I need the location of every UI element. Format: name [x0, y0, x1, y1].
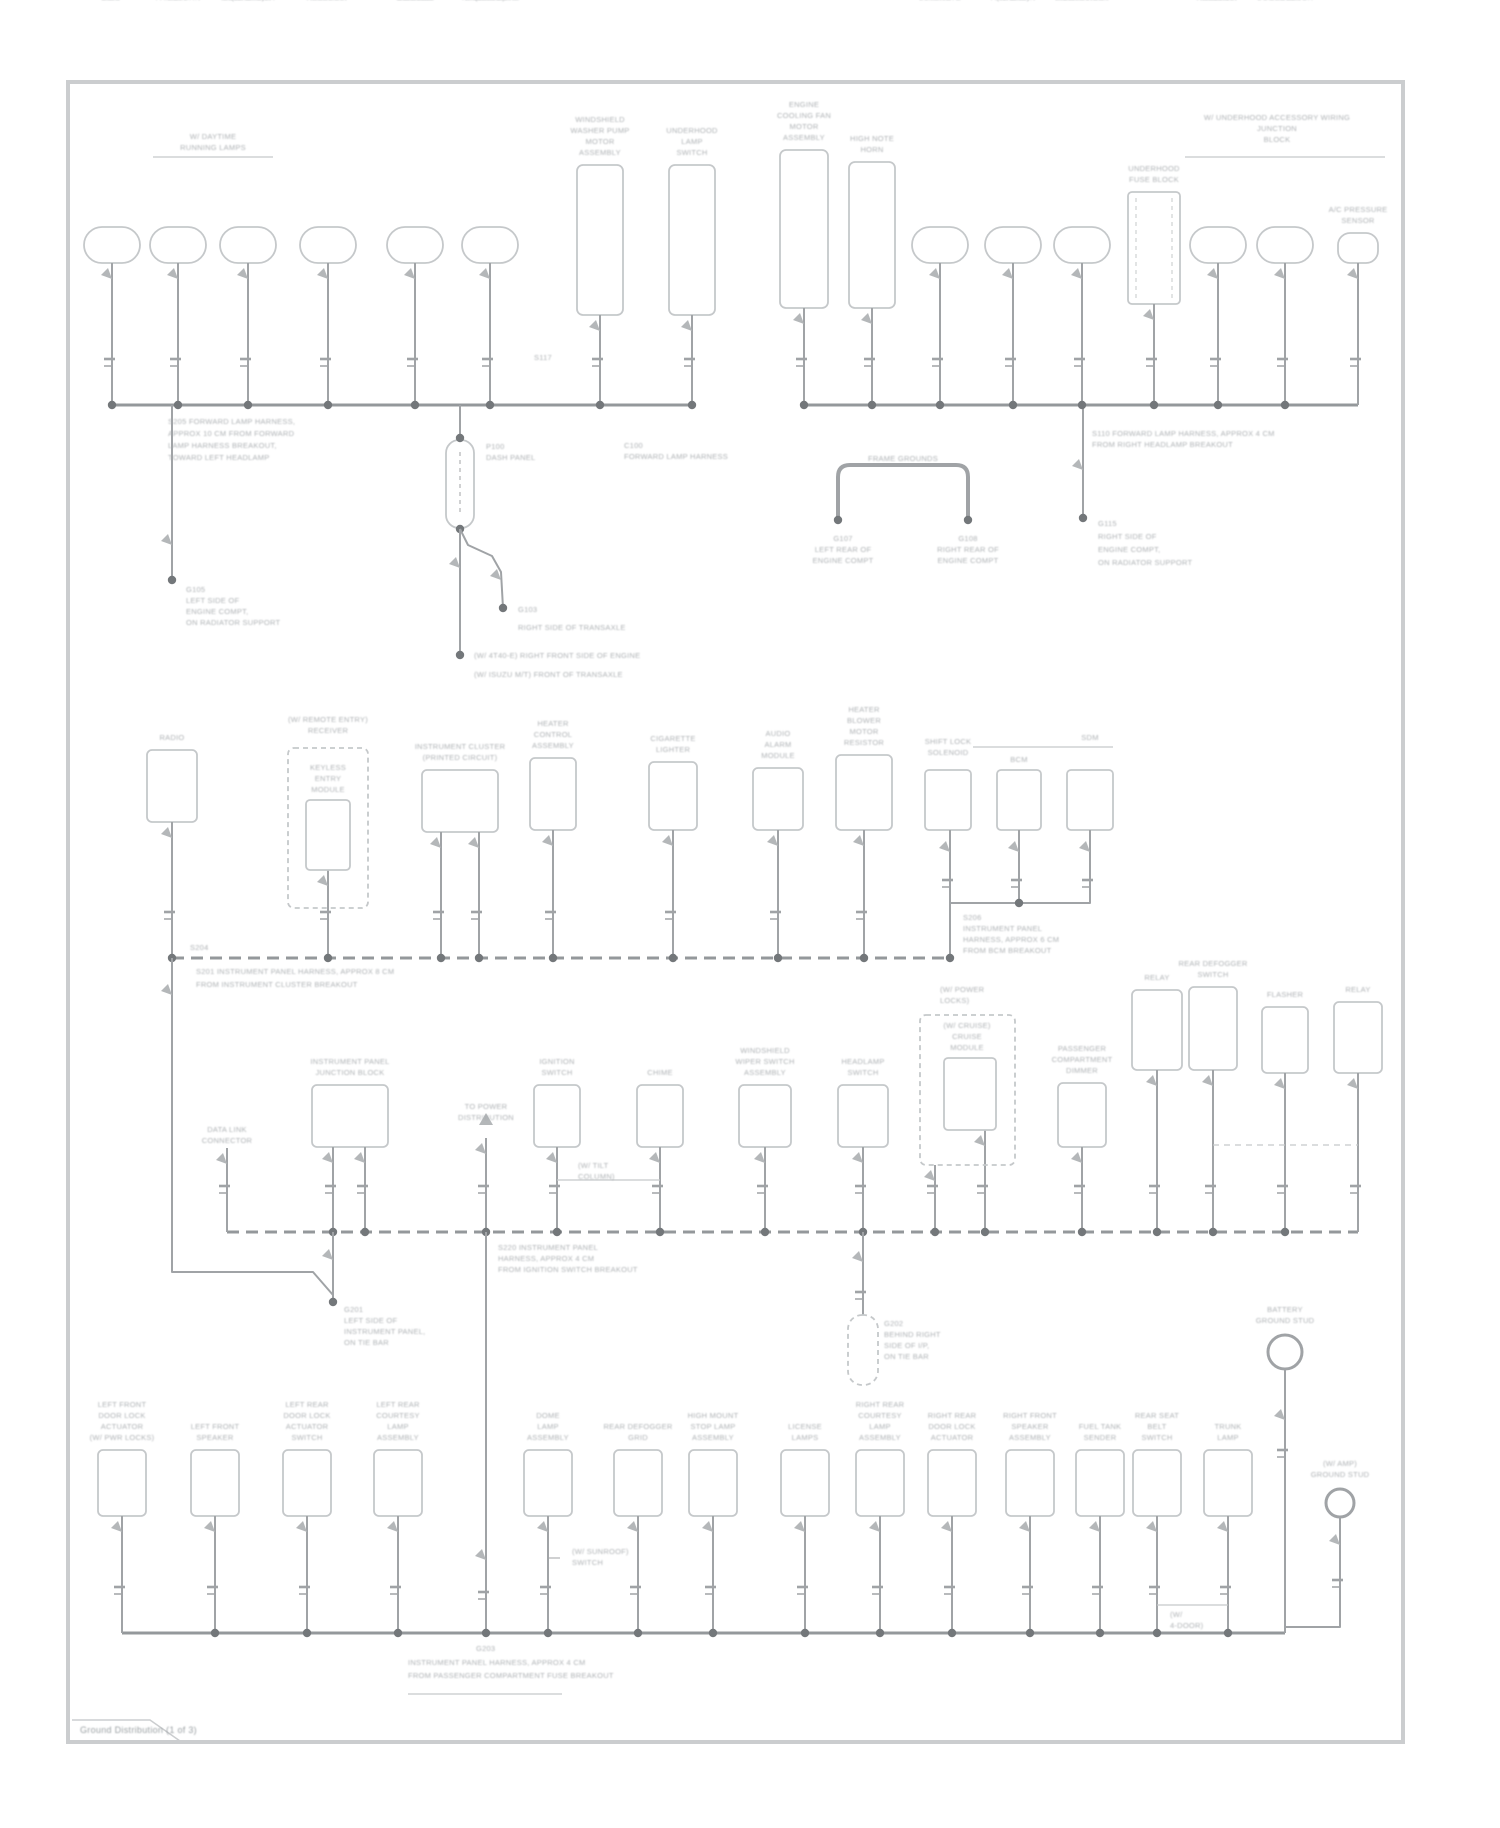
diagram-label: ON TIE BAR [344, 1338, 389, 1347]
diagram-label: ENGINE COMPT, [186, 607, 248, 616]
diagram-label: ENGINE COMPT [813, 556, 874, 565]
junction-dot [324, 954, 332, 962]
diagram-label: COMPARTMENT [1052, 1055, 1113, 1064]
page-border [68, 82, 1403, 1742]
diagram-label: G201 [344, 1305, 363, 1314]
diagram-label: ASSEMBLY [527, 1433, 569, 1442]
junction-dot [475, 954, 483, 962]
component-symbol [780, 150, 828, 308]
diagram-label: ACTUATOR [101, 1422, 144, 1431]
component-symbol [849, 162, 895, 308]
junction-dot [1096, 1629, 1104, 1637]
junction-dot [411, 401, 419, 409]
diagram-label: FRAME GROUNDS [868, 454, 938, 463]
splice-flag-icon [387, 1521, 398, 1532]
diagram-label: ASSEMBLY [307, 0, 349, 2]
diagram-label: CLUTCH [1269, 0, 1301, 2]
diagram-label: HIGH NOTE [850, 134, 894, 143]
diagram-label: INSTRUMENT PANEL HARNESS, APPROX 4 CM [408, 1658, 585, 1667]
diagram-label: W/ DAYTIME [190, 132, 237, 141]
junction-dot [303, 1629, 311, 1637]
component-symbol [848, 1315, 878, 1385]
component-symbol [836, 755, 892, 830]
junction-dot [549, 954, 557, 962]
junction-dot [1281, 1228, 1289, 1236]
diagram-label: WIPER SWITCH [735, 1057, 794, 1066]
splice-flag-icon [649, 1152, 660, 1163]
diagram-label: HIGH MOUNT [688, 1411, 739, 1420]
diagram-label: SWITCH [291, 1433, 322, 1442]
diagram-label: SWITCH [1141, 1433, 1172, 1442]
splice-flag-icon [929, 268, 940, 279]
diagram-label: (W/ TILT [578, 1161, 609, 1170]
diagram-label: W/ UNDERHOOD ACCESSORY WIRING [1204, 113, 1350, 122]
splice-flag-icon [161, 984, 172, 995]
diagram-label: SENSOR [1341, 216, 1375, 225]
diagram-label: CHIME [647, 1068, 672, 1077]
diagram-label: CONNECTOR [202, 1136, 253, 1145]
diagram-label: (W/ POWER [940, 985, 985, 994]
splice-flag-icon [317, 875, 328, 886]
diagram-label: C100 [624, 441, 643, 450]
splice-flag-icon [662, 835, 673, 846]
junction-dot [596, 401, 604, 409]
junction-dot [1078, 1228, 1086, 1236]
diagram-label: ASSEMBLY [1197, 0, 1239, 2]
diagram-label: WINDSHIELD [575, 115, 625, 124]
diagram-label: G105 [186, 585, 205, 594]
component-symbol [781, 1450, 829, 1516]
splice-flag-icon [111, 1521, 122, 1532]
diagram-label: LEFT REAR OF [815, 545, 872, 554]
component-symbol [689, 1450, 737, 1516]
diagram-label: LIGHTER [656, 745, 691, 754]
diagram-label: UNDERHOOD [666, 126, 718, 135]
junction-dot [1153, 1228, 1161, 1236]
junction-dot [1224, 1629, 1232, 1637]
junction-dot [946, 954, 954, 962]
component-symbol [753, 768, 803, 830]
splice-flag-icon [475, 1143, 486, 1154]
diagram-label: SDM [1081, 733, 1098, 742]
junction-dot [656, 1228, 664, 1236]
splice-flag-icon [1019, 1521, 1030, 1532]
diagram-label: ASSEMBLY [744, 1068, 786, 1077]
junction-dot [1026, 1629, 1034, 1637]
splice-flag-icon [1347, 268, 1358, 279]
diagram-label: G202 [884, 1319, 903, 1328]
splice-flag-icon [974, 1135, 985, 1146]
component-symbol [191, 1450, 239, 1516]
splice-flag-icon [1071, 1152, 1082, 1163]
diagram-label: G107 [833, 534, 852, 543]
diagram-label: SPEAKER [1011, 1422, 1049, 1431]
diagram-label: TO POWER [465, 1102, 508, 1111]
diagram-label: LAMP [869, 1422, 890, 1431]
splice-flag-icon [1146, 1521, 1157, 1532]
text-layer: LEFTFOGLAMPLEFTPARK/TURNLAMPLEFT FRONTSI… [90, 0, 1388, 1680]
component-symbol [1076, 1450, 1124, 1516]
diagram-label: S204 [190, 943, 209, 952]
wiring-diagram-canvas: LEFTFOGLAMPLEFTPARK/TURNLAMPLEFT FRONTSI… [0, 0, 1500, 1828]
splice-flag-icon [1207, 268, 1218, 279]
splice-flag-icon [924, 1170, 935, 1181]
diagram-label: LAMP [101, 0, 122, 2]
diagram-label: HORN [860, 145, 883, 154]
diagram-label: BLOWER [847, 716, 881, 725]
diagram-label: S206 [963, 913, 982, 922]
diagram-label: DOOR LOCK [98, 1411, 145, 1420]
junction-dot [964, 516, 972, 524]
component-symbol [637, 1085, 683, 1147]
diagram-label: 4-DOOR) [1170, 1621, 1204, 1630]
diagram-label: LAMP [387, 1422, 408, 1431]
splice-flag-icon [1072, 459, 1083, 470]
component-symbol [147, 750, 197, 822]
splice-flag-icon [941, 1521, 952, 1532]
diagram-label: ACTUATOR [931, 1433, 974, 1442]
diagram-label: SENDER [1084, 1433, 1117, 1442]
component-symbol [669, 165, 715, 315]
junction-dot [774, 954, 782, 962]
splice-flag-icon [161, 534, 172, 545]
splice-flag-icon [204, 1521, 215, 1532]
diagram-label: SWITCH [572, 1558, 603, 1567]
component-symbol [387, 227, 443, 263]
splice-flag-icon [430, 837, 441, 848]
diagram-label: FUEL TANK [1079, 1422, 1122, 1431]
diagram-label: (PRINTED CIRCUIT) [423, 753, 498, 762]
diagram-label: (W/ REMOTE ENTRY) [288, 715, 368, 724]
diagram-label: INSTRUMENT PANEL, [344, 1327, 425, 1336]
junction-dot [634, 1629, 642, 1637]
diagram-label: REAR SEAT [1135, 1411, 1179, 1420]
splice-flag-icon [542, 835, 553, 846]
diagram-label: (W/ ISUZU M/T) FRONT OF TRANSAXLE [474, 670, 623, 679]
diagram-label: WASHER PUMP [570, 126, 629, 135]
diagram-label: LAMP [681, 137, 702, 146]
component-symbol [838, 1085, 888, 1147]
junction-dot [1281, 401, 1289, 409]
splice-flag-icon [216, 1153, 227, 1164]
junction-dot [108, 401, 116, 409]
splice-flag-icon [852, 1251, 863, 1262]
component-symbol [300, 227, 356, 263]
diagram-label: ASSEMBLY [377, 1433, 419, 1442]
diagram-label: INSTRUMENT PANEL [963, 924, 1042, 933]
diagram-label: HEATER [537, 719, 569, 728]
diagram-label: SHIFT LOCK [925, 737, 972, 746]
diagram-label: RADIO [159, 733, 184, 742]
diagram-label: SPEAKER [196, 1433, 234, 1442]
diagram-label: BELT [1147, 1422, 1166, 1431]
splice-flag-icon [627, 1521, 638, 1532]
diagram-label: SWITCH [847, 1068, 878, 1077]
diagram-label: SWITCH [1197, 970, 1228, 979]
diagram-label: IGNITION [539, 1057, 574, 1066]
wire [838, 465, 968, 520]
diagram-label: ASSEMBLY [783, 133, 825, 142]
splice-flag-icon [546, 1152, 557, 1163]
diagram-label: MODULE [950, 1043, 984, 1052]
splice-flag-icon [296, 1521, 307, 1532]
component-symbol [614, 1450, 662, 1516]
diagram-label: S110 FORWARD LAMP HARNESS, APPROX 4 CM [1092, 429, 1275, 438]
diagram-label: FROM RIGHT HEADLAMP BREAKOUT [1092, 440, 1233, 449]
diagram-label: ON TIE BAR [884, 1352, 929, 1361]
diagram-label: FORWARD LAMP HARNESS [624, 452, 728, 461]
diagram-label: LAMP [1071, 0, 1092, 2]
diagram-label: RIGHT REAR OF [937, 545, 999, 554]
diagram-label: MODULE [311, 785, 345, 794]
diagram-label: DIMMER [1066, 1066, 1098, 1075]
diagram-label: SIDE OF I/P, [884, 1341, 929, 1350]
junction-dot [1153, 1629, 1161, 1637]
diagram-label: ON RADIATOR SUPPORT [1098, 558, 1193, 567]
splice-flag-icon [767, 835, 778, 846]
splice-flag-icon [1143, 309, 1154, 320]
diagram-label: REAR DEFOGGER [1178, 959, 1247, 968]
diagram-label: RELAY [1345, 985, 1370, 994]
page: LEFTFOGLAMPLEFTPARK/TURNLAMPLEFT FRONTSI… [0, 0, 1500, 1828]
diagram-label: GRID [628, 1433, 648, 1442]
splice-flag-icon [861, 313, 872, 324]
diagram-label: FROM PASSENGER COMPARTMENT FUSE BREAKOUT [408, 1671, 614, 1680]
diagram-label: HARNESS, APPROX 6 CM [963, 935, 1059, 944]
junction-dot [1079, 514, 1087, 522]
diagram-label: MODULE [398, 0, 432, 2]
diagram-label: DOOR LOCK [283, 1411, 330, 1420]
diagram-label: (W/ [1170, 1610, 1183, 1619]
diagram-label: RIGHT FRONT [1003, 1411, 1057, 1420]
splice-flag-icon [404, 268, 415, 279]
component-symbol [928, 1450, 976, 1516]
page-caption: Ground Distribution (1 of 3) [80, 1725, 197, 1735]
splice-flag-icon [1071, 268, 1082, 279]
diagram-label: CRUISE [952, 1032, 982, 1041]
diagram-label: ASSEMBLY [532, 741, 574, 750]
component-symbol [1067, 770, 1113, 830]
diagram-label: DASH PANEL [486, 453, 535, 462]
junction-dot [1009, 401, 1017, 409]
diagram-label: ASSEMBLY [692, 1433, 734, 1442]
splice-flag-icon [354, 1152, 365, 1163]
splice-flag-icon [449, 557, 460, 568]
junction-dot [456, 651, 464, 659]
splice-flag-icon [317, 268, 328, 279]
junction-dot [361, 1228, 369, 1236]
diagram-label: MOTOR [585, 137, 614, 146]
junction-dot [688, 401, 696, 409]
diagram-label: BATTERY [1267, 1305, 1303, 1314]
diagram-label: MOTOR [849, 727, 878, 736]
component-symbol [1058, 1083, 1106, 1147]
junction-dot [876, 1629, 884, 1637]
splice-flag-icon [681, 320, 692, 331]
component-symbol [577, 165, 623, 315]
diagram-label: (W/ SUNROOF) [572, 1547, 629, 1556]
splice-flag-icon [1146, 1075, 1157, 1086]
wire [460, 529, 503, 608]
component-symbol [150, 227, 206, 263]
diagram-label: DOOR LOCK [928, 1422, 975, 1431]
ground-stud-icon [1268, 1335, 1302, 1369]
junction-dot [936, 401, 944, 409]
junction-dot [1214, 401, 1222, 409]
junction-dot [1078, 401, 1086, 409]
diagram-label: CIGARETTE [650, 734, 695, 743]
junction-dot [544, 1629, 552, 1637]
diagram-label: RIGHT SIDE OF TRANSAXLE [518, 623, 626, 632]
diagram-label: ENGINE COMPT, [1098, 545, 1160, 554]
diagram-label: STOP LAMP [691, 1422, 736, 1431]
diagram-label: G203 [476, 1644, 495, 1653]
junction-dot [394, 1629, 402, 1637]
shapes-layer [68, 82, 1403, 1742]
diagram-label: ENTRY [315, 774, 342, 783]
diagram-label: DISTRIBUTION [458, 1113, 514, 1122]
component-symbol [912, 227, 968, 263]
component-symbol [530, 758, 576, 830]
diagram-label: RESISTOR [844, 738, 885, 747]
diagram-label: ENGINE COMPT [938, 556, 999, 565]
diagram-label: COURTESY [858, 1411, 902, 1420]
diagram-label: G108 [958, 534, 977, 543]
splice-flag-icon [1217, 1521, 1228, 1532]
diagram-label: INSTRUMENT CLUSTER [415, 742, 506, 751]
component-symbol [374, 1450, 422, 1516]
diagram-label: FUSE BLOCK [1129, 175, 1179, 184]
splice-flag-icon [167, 268, 178, 279]
diagram-label: SOLENOID [928, 748, 969, 757]
diagram-label: (W/ PWR LOCKS) [90, 1433, 155, 1442]
junction-dot [437, 954, 445, 962]
diagram-label: COURTESY [376, 1411, 420, 1420]
junction-dot [931, 1228, 939, 1236]
splice-flag-icon [475, 1549, 486, 1560]
diagram-label: TOWARD LEFT HEADLAMP [168, 453, 270, 462]
junction-dot [709, 1629, 717, 1637]
diagram-label: (W/ DRL) [996, 0, 1029, 2]
diagram-label: LOCKS) [940, 996, 970, 1005]
junction-dot [868, 401, 876, 409]
component-symbol [739, 1085, 791, 1147]
component-symbol [1204, 1450, 1252, 1516]
diagram-label: (W/ CRUISE) [943, 1021, 991, 1030]
diagram-label: ENGINE [789, 100, 819, 109]
junction-dot [486, 401, 494, 409]
component-symbol [1133, 1450, 1181, 1516]
diagram-label: RUNNING LAMPS [180, 143, 246, 152]
splice-flag-icon [479, 268, 490, 279]
junction-dot [324, 401, 332, 409]
diagram-label: LEFT REAR [285, 1400, 329, 1409]
diagram-label: LAMP [167, 0, 188, 2]
component-symbol [84, 227, 140, 263]
wire [1285, 1517, 1340, 1627]
splice-flag-icon [589, 320, 600, 331]
diagram-label: A/C PRESSURE [1329, 205, 1388, 214]
component-symbol [649, 762, 697, 830]
diagram-label: LAMP [1217, 1433, 1238, 1442]
diagram-label: HEADLAMP [841, 1057, 884, 1066]
diagram-label: COLUMN) [578, 1172, 615, 1181]
diagram-label: HARNESS, APPROX 4 CM [498, 1254, 594, 1263]
splice-flag-icon [754, 1152, 765, 1163]
splice-flag-icon [237, 268, 248, 279]
diagram-label: P100 [486, 442, 505, 451]
diagram-label: RIGHT REAR [928, 1411, 977, 1420]
junction-dot [981, 1228, 989, 1236]
diagram-label: S201 INSTRUMENT PANEL HARNESS, APPROX 8 … [196, 967, 394, 976]
diagram-label: (W/ DRL) [231, 0, 264, 2]
component-symbol [997, 770, 1041, 830]
diagram-label: LEFT SIDE OF [344, 1316, 397, 1325]
splice-flag-icon [322, 1152, 333, 1163]
component-symbol [312, 1085, 388, 1147]
diagram-label: PASSENGER [1058, 1044, 1107, 1053]
junction-dot [329, 1298, 337, 1306]
wire [172, 958, 333, 1302]
junction-dot [244, 401, 252, 409]
splice-flag-icon [1202, 1075, 1213, 1086]
junction-dot [482, 1629, 490, 1637]
junction-dot [168, 576, 176, 584]
diagram-label: (W/ AMP) [1323, 1459, 1357, 1468]
junction-dot [211, 1629, 219, 1637]
splice-flag-icon [1089, 1521, 1100, 1532]
diagram-label: LICENSE [788, 1422, 822, 1431]
diagram-label: FROM IGNITION SWITCH BREAKOUT [498, 1265, 638, 1274]
diagram-label: UNDERHOOD [1128, 164, 1180, 173]
junction-dot [669, 954, 677, 962]
ground-stud-icon [1326, 1489, 1354, 1517]
junction-dot [860, 954, 868, 962]
diagram-label: BLOCK [1264, 135, 1291, 144]
junction-dot [499, 604, 507, 612]
diagram-label: SWITCH [541, 1068, 572, 1077]
component-symbol [1189, 987, 1237, 1070]
junction-dot [553, 1228, 561, 1236]
diagram-label: RELAY [1144, 973, 1169, 982]
diagram-label: (W/ A/C) [475, 0, 506, 2]
diagram-label: RIGHT REAR [856, 1400, 905, 1409]
component-symbol [1006, 1450, 1054, 1516]
splice-flag-icon [1274, 1409, 1285, 1420]
splice-flag-icon [702, 1521, 713, 1532]
component-symbol [1262, 1007, 1308, 1073]
diagram-label: LEFT FRONT [191, 1422, 240, 1431]
diagram-label: ON RADIATOR SUPPORT [186, 618, 281, 627]
diagram-label: DOME [536, 1411, 560, 1420]
splice-flag-icon [1274, 268, 1285, 279]
junction-dot [1150, 401, 1158, 409]
diagram-label: KEYLESS [310, 763, 346, 772]
component-symbol [856, 1450, 904, 1516]
diagram-label: HEATER [848, 705, 880, 714]
splice-flag-icon [794, 1521, 805, 1532]
diagram-label: INSTRUMENT PANEL [310, 1057, 389, 1066]
component-symbol [283, 1450, 331, 1516]
splice-flag-icon [869, 1521, 880, 1532]
diagram-label: COOLING FAN [777, 111, 831, 120]
diagram-label: LEFT REAR [376, 1400, 420, 1409]
component-symbol [1334, 1002, 1382, 1073]
diagram-label: TRUNK [1214, 1422, 1241, 1431]
splice-flag-icon [852, 1152, 863, 1163]
component-symbol [925, 770, 971, 830]
junction-dot [761, 1228, 769, 1236]
